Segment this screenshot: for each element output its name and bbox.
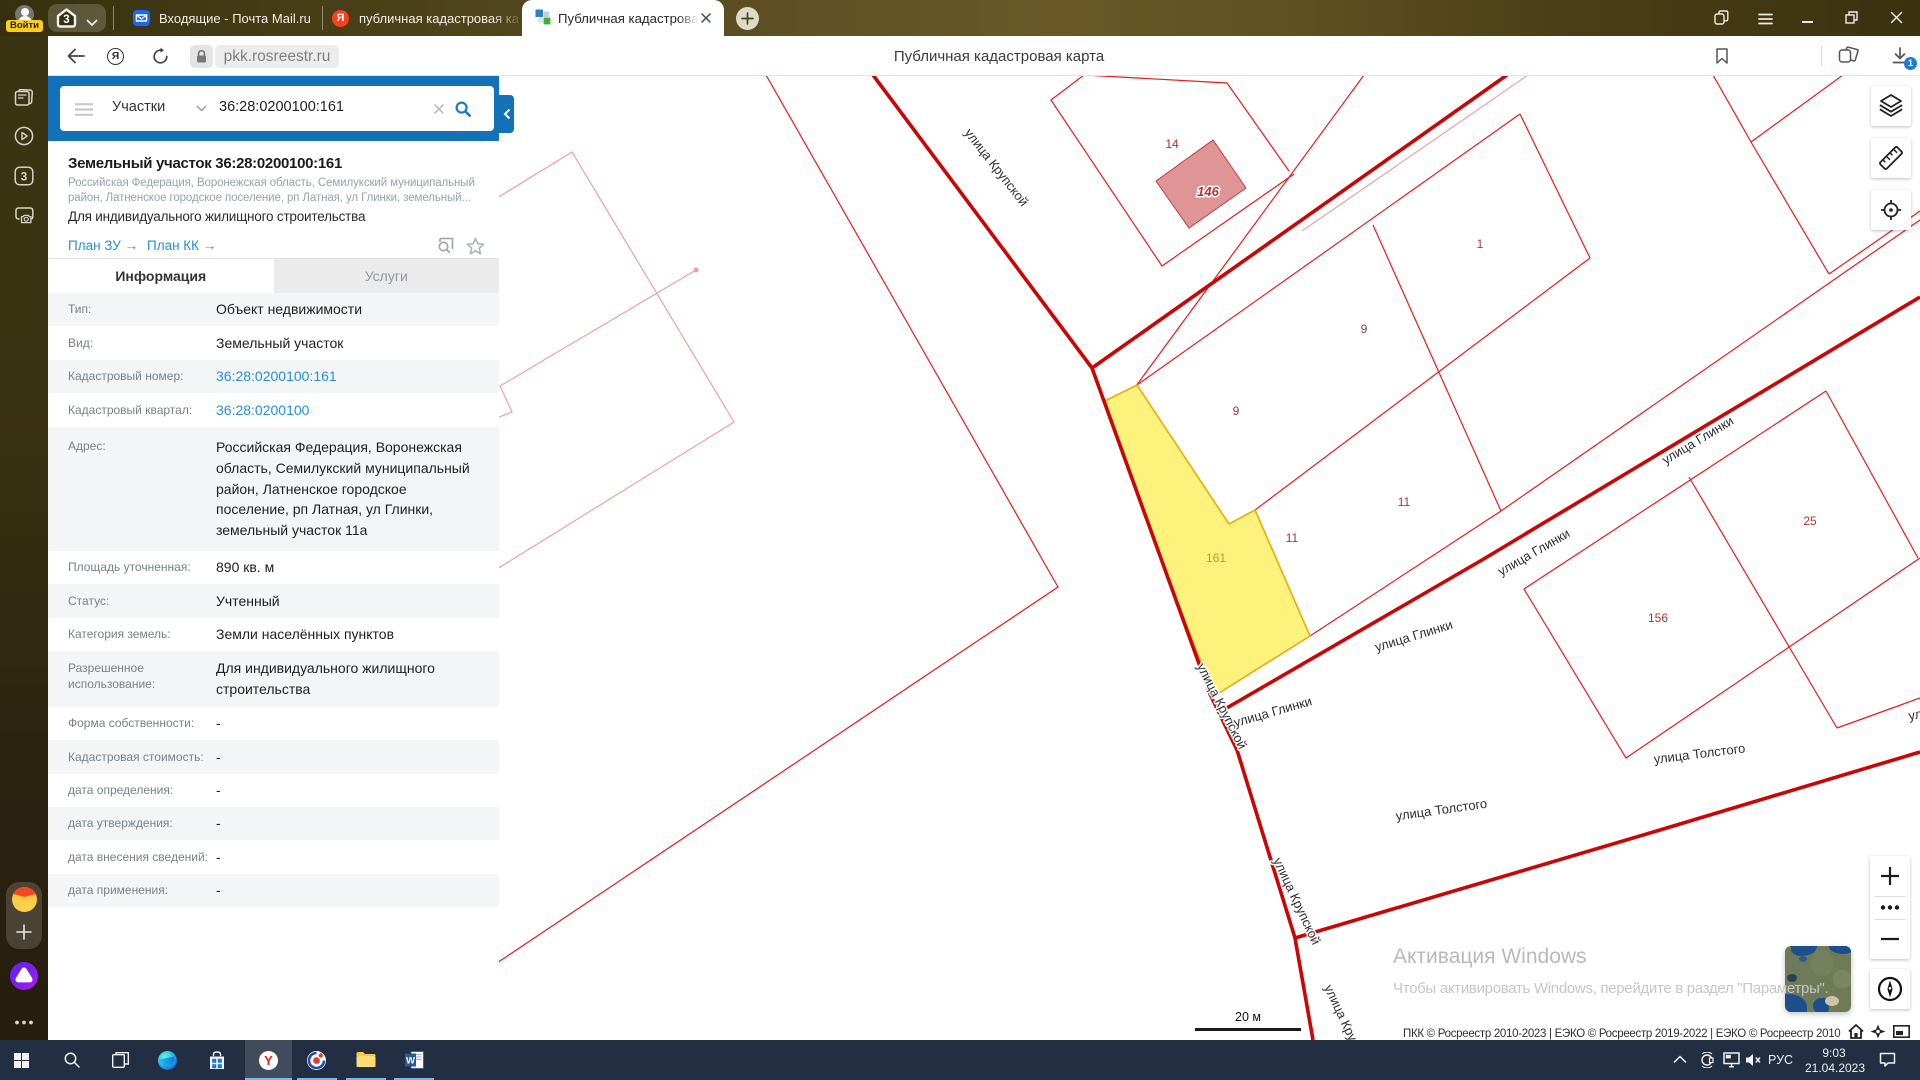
svg-text:улица Толстого: улица Толстого [1653,740,1746,766]
svg-text:улица Толстого: улица Толстого [1395,796,1488,824]
svg-text:W: W [406,1056,415,1067]
svg-text:улица Крупской: улица Крупской [1321,982,1374,1040]
svg-text:11: 11 [1286,531,1299,545]
svg-text:1: 1 [1477,237,1484,251]
svg-text:ул: ул [1907,706,1920,723]
svg-text:3: 3 [21,170,28,184]
svg-text:улица Глинки: улица Глинки [1373,617,1455,655]
svg-text:улица Глинки: улица Глинки [1495,525,1572,578]
svg-text:9: 9 [1361,322,1368,336]
svg-text:улица Крупской: улица Крупской [962,125,1032,209]
svg-text:3: 3 [63,14,69,26]
svg-text:25: 25 [1803,514,1817,528]
svg-text:156: 156 [1648,611,1668,625]
svg-text:11: 11 [1398,495,1411,509]
svg-text:161: 161 [1206,551,1226,565]
svg-text:9: 9 [1233,404,1240,418]
svg-text:14: 14 [1165,137,1179,151]
svg-text:146: 146 [1197,184,1219,199]
svg-text:улица Глинки: улица Глинки [1659,413,1736,467]
svg-text:улица Крупской: улица Крупской [1270,855,1323,947]
